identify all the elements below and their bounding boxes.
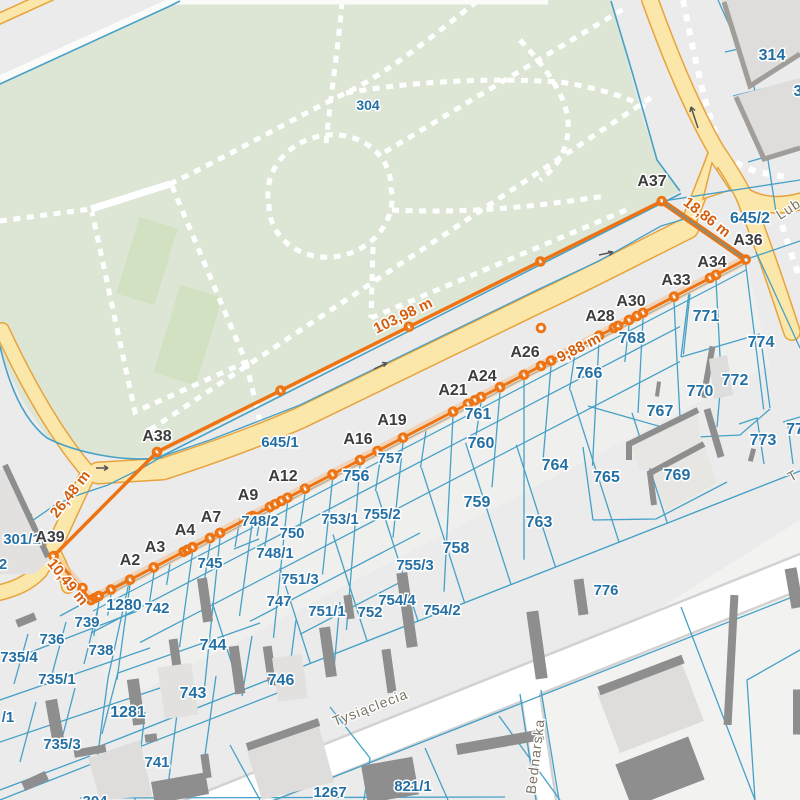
- svg-text:758: 758: [443, 540, 470, 557]
- svg-text:A30: A30: [616, 293, 645, 310]
- svg-text:764: 764: [542, 457, 569, 474]
- svg-text:A7: A7: [201, 509, 222, 526]
- svg-text:1281: 1281: [110, 704, 146, 721]
- svg-text:748/2: 748/2: [241, 513, 279, 530]
- svg-text:741: 741: [144, 754, 169, 771]
- svg-text:756: 756: [343, 468, 370, 485]
- svg-text:A2: A2: [120, 552, 141, 569]
- svg-text:747: 747: [266, 593, 291, 610]
- svg-text:751/1: 751/1: [308, 603, 346, 620]
- svg-text:1280: 1280: [106, 597, 142, 614]
- svg-text:753/1: 753/1: [321, 511, 359, 528]
- svg-text:A12: A12: [268, 468, 297, 485]
- svg-text:821/1: 821/1: [394, 778, 432, 795]
- svg-text:769: 769: [664, 467, 691, 484]
- svg-text:771: 771: [693, 308, 720, 325]
- svg-text:736: 736: [39, 631, 64, 648]
- svg-text:735/3: 735/3: [43, 736, 81, 753]
- svg-text:770: 770: [687, 383, 714, 400]
- svg-text:A4: A4: [175, 522, 196, 539]
- svg-text:751/3: 751/3: [281, 571, 319, 588]
- svg-text:755/2: 755/2: [363, 506, 401, 523]
- svg-text:742: 742: [144, 600, 169, 617]
- svg-text:77: 77: [786, 421, 800, 438]
- svg-text:A38: A38: [142, 428, 171, 445]
- svg-text:A9: A9: [238, 487, 259, 504]
- svg-text:/1: /1: [2, 709, 15, 726]
- svg-text:2: 2: [0, 556, 7, 573]
- svg-text:3: 3: [794, 83, 800, 100]
- svg-text:752: 752: [357, 604, 382, 621]
- svg-text:743: 743: [180, 685, 207, 702]
- svg-text:772: 772: [722, 372, 749, 389]
- svg-text:A21: A21: [438, 382, 467, 399]
- svg-text:A28: A28: [585, 308, 614, 325]
- svg-text:304: 304: [356, 97, 380, 113]
- svg-text:748/1: 748/1: [256, 545, 294, 562]
- svg-text:A3: A3: [145, 539, 166, 556]
- svg-text:755/3: 755/3: [396, 557, 434, 574]
- svg-text:A37: A37: [637, 173, 666, 190]
- svg-text:763: 763: [526, 514, 553, 531]
- svg-text:739: 739: [74, 614, 99, 631]
- svg-text:A16: A16: [343, 431, 372, 448]
- svg-text:735/1: 735/1: [38, 671, 76, 688]
- svg-text:768: 768: [619, 330, 646, 347]
- svg-text:754/4: 754/4: [378, 592, 416, 609]
- svg-text:A26: A26: [510, 344, 539, 361]
- svg-text:754/2: 754/2: [423, 602, 461, 619]
- svg-text:766: 766: [576, 365, 603, 382]
- svg-text:759: 759: [464, 494, 491, 511]
- svg-text:738: 738: [88, 642, 113, 659]
- svg-text:745: 745: [197, 555, 222, 572]
- svg-text:760: 760: [468, 435, 495, 452]
- svg-text:735/4: 735/4: [0, 649, 38, 666]
- svg-text:773: 773: [750, 432, 777, 449]
- svg-text:761: 761: [465, 406, 492, 423]
- svg-text:314: 314: [759, 47, 786, 64]
- svg-text:746: 746: [268, 672, 295, 689]
- svg-text:1267: 1267: [313, 784, 346, 800]
- svg-text:A33: A33: [661, 272, 690, 289]
- svg-text:A19: A19: [377, 412, 406, 429]
- svg-text:765: 765: [593, 469, 620, 486]
- svg-text:A36: A36: [733, 232, 762, 249]
- svg-text:744: 744: [200, 637, 227, 654]
- svg-text:767: 767: [647, 403, 674, 420]
- svg-text:A24: A24: [467, 368, 496, 385]
- svg-text:776: 776: [593, 582, 618, 599]
- svg-text:A39: A39: [35, 529, 64, 546]
- svg-text:774: 774: [748, 334, 775, 351]
- svg-text:750: 750: [279, 525, 304, 542]
- svg-text:757: 757: [377, 450, 402, 467]
- svg-text:645/1: 645/1: [261, 434, 299, 451]
- svg-text:A34: A34: [697, 254, 726, 271]
- svg-text:304: 304: [82, 793, 108, 800]
- svg-text:645/2: 645/2: [730, 210, 770, 227]
